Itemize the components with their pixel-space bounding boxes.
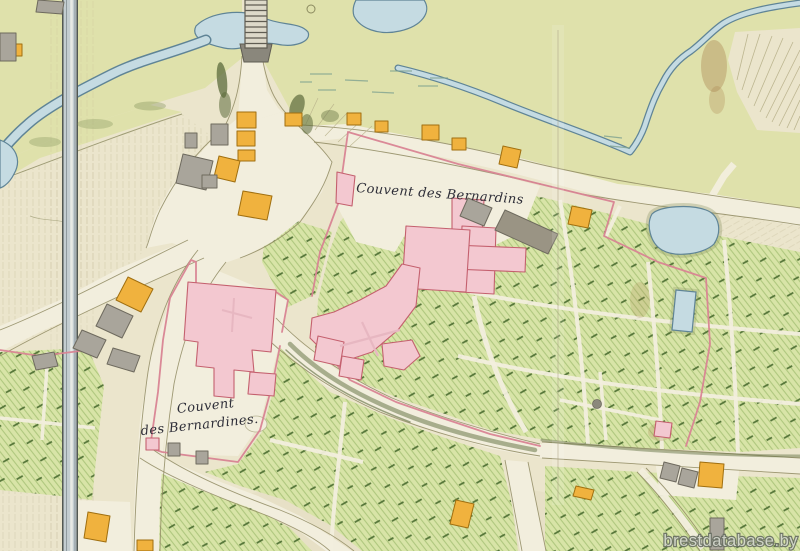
pond-large bbox=[649, 207, 718, 255]
house-gray bbox=[36, 0, 64, 14]
southwest-step bbox=[339, 356, 364, 380]
house-gray bbox=[202, 175, 217, 188]
tree-clump bbox=[321, 110, 339, 122]
house-orange bbox=[375, 121, 388, 132]
house-orange bbox=[698, 462, 724, 488]
house-orange bbox=[285, 113, 302, 126]
house-gray bbox=[196, 451, 208, 464]
ink-smudge bbox=[701, 40, 727, 92]
pond-small bbox=[672, 290, 696, 332]
historical-map: Couvent des Bernardins Couvent des Berna… bbox=[0, 0, 800, 551]
house-orange bbox=[137, 540, 153, 551]
house-gray bbox=[168, 443, 180, 456]
house-orange bbox=[214, 156, 240, 182]
house-orange bbox=[84, 512, 110, 542]
house-pink bbox=[654, 421, 672, 438]
house-orange bbox=[347, 113, 361, 125]
bridge bbox=[240, 0, 272, 62]
house-gray bbox=[211, 124, 228, 145]
tree-row bbox=[134, 102, 166, 111]
house-gray bbox=[185, 133, 197, 148]
canal bbox=[62, 0, 78, 551]
map-fold bbox=[552, 25, 564, 505]
house-orange bbox=[452, 138, 466, 150]
house-gray bbox=[0, 33, 16, 61]
ink-smudge bbox=[709, 86, 725, 114]
well bbox=[593, 400, 602, 409]
house-pink bbox=[146, 438, 159, 450]
house-orange bbox=[237, 112, 256, 128]
house-orange bbox=[422, 125, 439, 140]
southwest-foot bbox=[314, 336, 344, 366]
stain bbox=[630, 282, 650, 318]
house-gray bbox=[678, 468, 698, 488]
house-orange bbox=[238, 191, 272, 220]
house-orange bbox=[238, 150, 255, 161]
tree-clump bbox=[301, 114, 313, 134]
bridge-deck bbox=[245, 0, 267, 48]
map-canvas: Couvent des Bernardins Couvent des Berna… bbox=[0, 0, 800, 551]
gate-building bbox=[336, 172, 355, 206]
house-orange bbox=[237, 131, 255, 146]
house-gray bbox=[660, 462, 680, 482]
tree-row bbox=[29, 137, 61, 147]
annex-block bbox=[248, 372, 276, 396]
house-orange bbox=[499, 146, 521, 168]
watermark-text: brestdatabase.by bbox=[663, 532, 798, 550]
tree-row bbox=[77, 119, 113, 129]
tree-clump bbox=[219, 92, 231, 118]
house-orange bbox=[568, 206, 592, 228]
